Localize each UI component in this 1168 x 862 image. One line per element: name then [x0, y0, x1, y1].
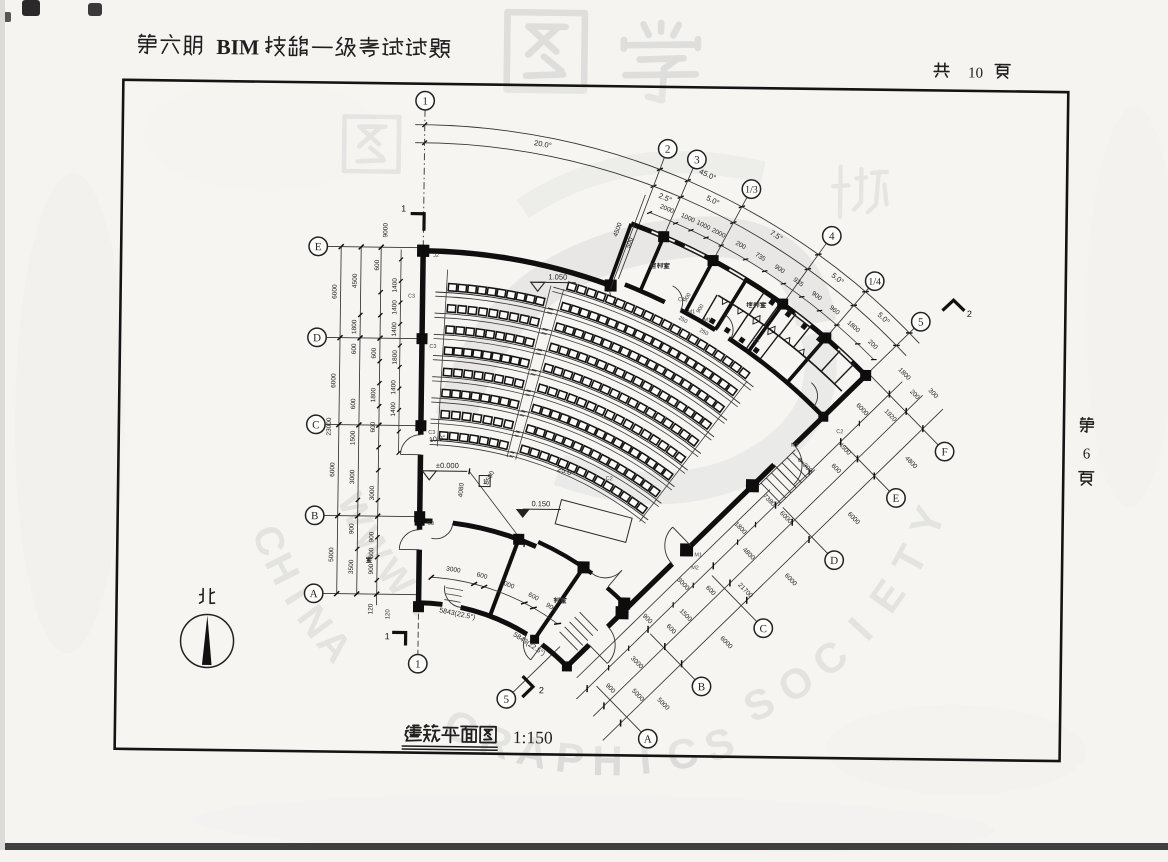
- svg-text:A: A: [644, 734, 652, 746]
- svg-text:1: 1: [415, 659, 421, 671]
- svg-text:A: A: [310, 588, 318, 600]
- svg-text:1800: 1800: [370, 387, 377, 402]
- svg-text:D: D: [830, 555, 838, 567]
- svg-text:1400: 1400: [390, 380, 397, 395]
- svg-text:1400: 1400: [391, 322, 398, 337]
- svg-text:600: 600: [351, 343, 358, 354]
- svg-text:M1: M1: [688, 309, 696, 315]
- svg-text:C: C: [760, 623, 768, 635]
- svg-text:F: F: [941, 446, 947, 458]
- svg-text:600: 600: [370, 421, 377, 432]
- svg-text:10: 10: [968, 65, 983, 81]
- svg-text:C1: C1: [752, 338, 759, 344]
- svg-text:5000: 5000: [328, 547, 335, 562]
- svg-text:E: E: [893, 493, 900, 505]
- svg-text:C2: C2: [606, 476, 613, 482]
- svg-text:3000: 3000: [369, 485, 376, 500]
- svg-text:1:150: 1:150: [513, 727, 553, 748]
- svg-text:2: 2: [665, 144, 671, 156]
- svg-text:D: D: [313, 332, 321, 344]
- svg-text:4: 4: [829, 231, 835, 243]
- svg-text:3500: 3500: [348, 559, 355, 574]
- svg-text:C3: C3: [427, 521, 434, 527]
- svg-text:1500: 1500: [350, 430, 357, 445]
- svg-text:600: 600: [350, 398, 357, 409]
- svg-text:900: 900: [348, 523, 355, 534]
- svg-text:1/4: 1/4: [868, 277, 881, 288]
- svg-text:6000: 6000: [329, 462, 336, 477]
- svg-text:600: 600: [371, 347, 378, 358]
- svg-text:1/3: 1/3: [745, 185, 758, 196]
- svg-text:6000: 6000: [332, 284, 339, 299]
- svg-text:1: 1: [422, 96, 428, 108]
- svg-text:C3: C3: [408, 294, 415, 300]
- svg-text:M1: M1: [703, 317, 711, 323]
- svg-text:0.150: 0.150: [531, 499, 550, 508]
- svg-text:±0.000: ±0.000: [436, 461, 459, 470]
- svg-text:1.050: 1.050: [548, 272, 567, 281]
- svg-text:BIM: BIM: [216, 35, 259, 60]
- svg-text:600: 600: [374, 259, 381, 270]
- svg-text:900: 900: [368, 531, 375, 542]
- svg-text:6000: 6000: [330, 373, 337, 388]
- svg-text:120: 120: [367, 603, 374, 614]
- svg-text:2: 2: [539, 685, 544, 695]
- svg-text:C: C: [312, 419, 320, 431]
- svg-text:1400: 1400: [390, 402, 397, 417]
- svg-text:4080: 4080: [457, 482, 465, 497]
- svg-text:1800: 1800: [392, 350, 399, 365]
- svg-text:1: 1: [385, 631, 390, 641]
- svg-text:900: 900: [368, 563, 375, 574]
- svg-text:120: 120: [385, 609, 391, 620]
- svg-text:M1: M1: [694, 552, 702, 558]
- svg-text:23000: 23000: [326, 417, 333, 436]
- svg-text:B: B: [311, 510, 319, 522]
- svg-text:J2: J2: [433, 253, 439, 259]
- svg-text:1: 1: [483, 479, 487, 486]
- svg-text:5: 5: [918, 317, 924, 329]
- svg-text:C3: C3: [428, 430, 435, 436]
- svg-text:M2: M2: [691, 565, 699, 571]
- svg-text:E: E: [315, 241, 322, 253]
- svg-text:2: 2: [967, 309, 972, 319]
- svg-text:1800: 1800: [351, 319, 358, 334]
- svg-text:3: 3: [694, 154, 700, 166]
- svg-text:5: 5: [503, 694, 509, 706]
- svg-text:4500: 4500: [352, 273, 359, 288]
- svg-text:B: B: [698, 681, 706, 693]
- svg-text:1400: 1400: [391, 300, 398, 315]
- svg-text:3000: 3000: [349, 469, 356, 484]
- svg-text:6: 6: [1083, 446, 1091, 462]
- svg-text:1400: 1400: [392, 278, 399, 293]
- svg-text:M2: M2: [791, 443, 799, 449]
- svg-text:C3: C3: [429, 344, 436, 350]
- svg-text:C2: C2: [836, 429, 843, 435]
- svg-text:9000: 9000: [382, 223, 389, 238]
- svg-text:1: 1: [401, 203, 406, 213]
